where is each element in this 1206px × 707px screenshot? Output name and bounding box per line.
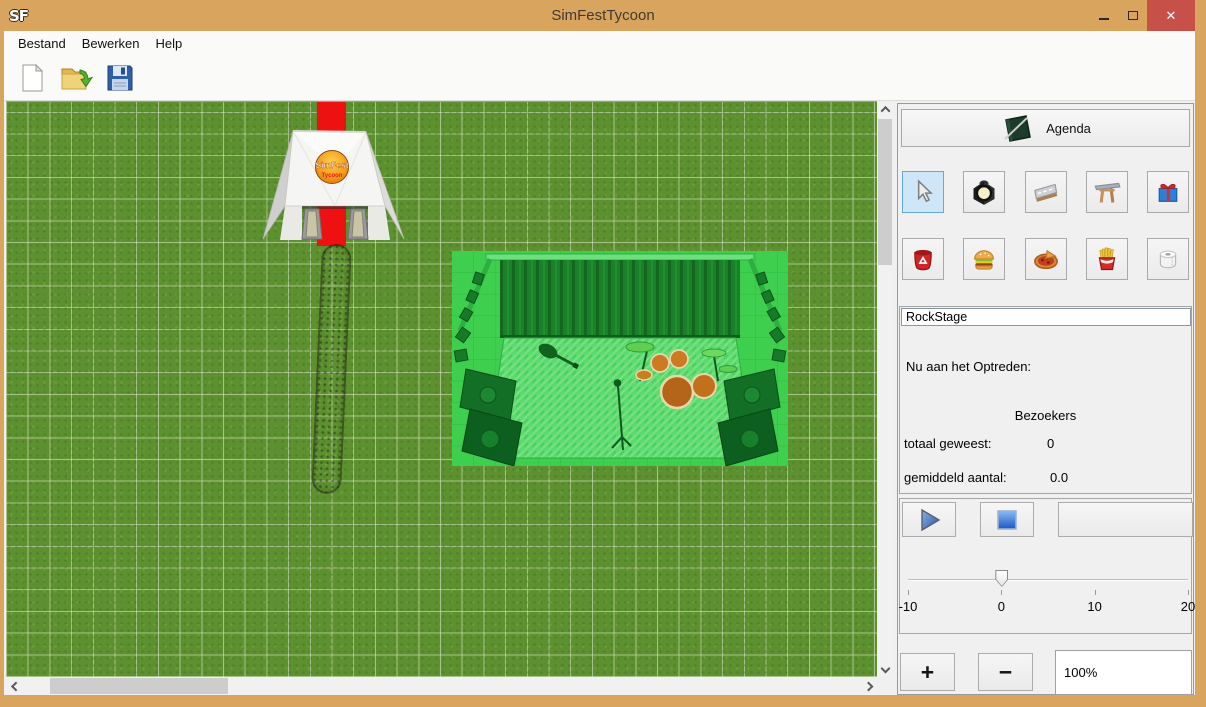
menu-bewerken[interactable]: Bewerken — [74, 34, 148, 53]
vertical-scrollbar[interactable] — [877, 101, 893, 677]
menu-help[interactable]: Help — [148, 34, 191, 53]
window-border-right — [1195, 31, 1206, 707]
select-tool-button[interactable] — [902, 171, 944, 213]
vertical-scroll-thumb[interactable] — [878, 119, 892, 265]
slider-label-min: -10 — [899, 599, 918, 614]
zoom-in-button[interactable]: + — [900, 653, 955, 691]
agenda-book-icon — [1000, 113, 1034, 143]
horizontal-scrollbar[interactable] — [6, 677, 877, 695]
road-tool-button[interactable] — [1025, 171, 1067, 213]
stage-name-input[interactable] — [901, 308, 1191, 326]
slider-track[interactable] — [908, 579, 1188, 580]
playback-section: -10 0 10 20 — [899, 498, 1192, 634]
chevron-down-icon — [880, 664, 890, 674]
trash-can-icon — [909, 245, 937, 273]
title-bar[interactable]: SF SimFestTycoon ✕ — [0, 0, 1206, 31]
zoom-out-button[interactable]: − — [978, 653, 1033, 691]
plus-icon: + — [921, 661, 934, 684]
now-performing-label: Nu aan het Optreden: — [906, 359, 1031, 374]
total-visitors-label: totaal geweest: — [904, 436, 991, 451]
tent-right-ramp — [348, 209, 368, 239]
visitors-header: Bezoekers — [900, 408, 1191, 423]
gift-tool-button[interactable] — [1147, 171, 1189, 213]
maximize-button[interactable] — [1118, 0, 1147, 31]
entrance-gate-tool-button[interactable] — [1086, 171, 1128, 213]
chevron-left-icon — [11, 681, 21, 691]
play-button[interactable] — [902, 502, 956, 537]
close-button[interactable]: ✕ — [1147, 0, 1195, 31]
road-piece-icon — [1032, 178, 1060, 206]
scroll-left-arrow[interactable] — [6, 677, 23, 695]
fries-stand-tool-button[interactable] — [1086, 238, 1128, 280]
minimize-icon — [1099, 18, 1109, 20]
svg-text:SimFest: SimFest — [315, 160, 348, 170]
stop-button[interactable] — [980, 502, 1034, 537]
agenda-label: Agenda — [1046, 121, 1091, 136]
spotlight-tool-button[interactable] — [963, 171, 1005, 213]
open-file-button[interactable] — [57, 59, 95, 97]
speed-slider[interactable]: -10 0 10 20 — [908, 563, 1188, 629]
maximize-icon — [1128, 11, 1138, 20]
tool-row-2 — [898, 238, 1193, 280]
save-file-button[interactable] — [101, 59, 139, 97]
window-border-left — [0, 31, 4, 707]
scroll-down-arrow[interactable] — [877, 660, 893, 677]
stage-curtain — [500, 260, 740, 338]
svg-text:Tycoon: Tycoon — [322, 173, 343, 179]
open-folder-icon — [59, 62, 93, 94]
gate-icon — [1093, 178, 1121, 206]
minimize-button[interactable] — [1089, 0, 1118, 31]
spotlight-icon — [970, 178, 998, 206]
menu-bestand[interactable]: Bestand — [10, 34, 74, 53]
window-border-bottom — [0, 695, 1206, 707]
toolbar — [4, 55, 1195, 101]
scroll-up-arrow[interactable] — [877, 101, 893, 118]
total-visitors-value: 0 — [1047, 436, 1054, 451]
simfest-logo: SimFest Tycoon — [315, 151, 348, 184]
gift-icon — [1154, 178, 1182, 206]
burger-stand-tool-button[interactable] — [963, 238, 1005, 280]
minus-icon: − — [999, 661, 1012, 684]
trash-can-tool-button[interactable] — [902, 238, 944, 280]
side-panel: Agenda — [897, 103, 1194, 695]
window-controls: ✕ — [1089, 0, 1195, 31]
tent-left-ramp — [302, 209, 322, 239]
zoom-level-input[interactable] — [1055, 650, 1192, 695]
horizontal-scroll-thumb[interactable] — [50, 678, 228, 694]
pizza-icon — [1032, 245, 1060, 273]
app-window: SF SimFestTycoon ✕ Bestand Bewerken Help — [0, 0, 1206, 707]
menu-bar: Bestand Bewerken Help — [4, 31, 1195, 55]
grass-grid[interactable]: SimFest Tycoon — [6, 101, 877, 677]
rock-stage[interactable] — [452, 251, 788, 466]
play-icon — [916, 507, 942, 533]
entrance-tent[interactable]: SimFest Tycoon — [262, 127, 407, 245]
slider-thumb[interactable] — [995, 570, 1008, 587]
fries-icon — [1093, 245, 1121, 273]
stage-info-section: Nu aan het Optreden: Bezoekers totaal ge… — [899, 306, 1192, 494]
toilet-paper-icon — [1154, 245, 1182, 273]
scroll-right-arrow[interactable] — [860, 677, 877, 695]
scrollbar-corner — [877, 677, 893, 695]
save-icon — [104, 62, 136, 94]
festival-map-canvas[interactable]: SimFest Tycoon — [6, 101, 893, 695]
average-visitors-label: gemiddeld aantal: — [904, 470, 1007, 485]
chevron-up-icon — [880, 106, 890, 116]
slider-label-max: 20 — [1181, 599, 1195, 614]
extra-playback-button[interactable] — [1058, 502, 1193, 537]
agenda-button[interactable]: Agenda — [901, 109, 1190, 147]
new-file-button[interactable] — [13, 59, 51, 97]
hamburger-icon — [970, 245, 998, 273]
pizza-stand-tool-button[interactable] — [1025, 238, 1067, 280]
window-title: SimFestTycoon — [0, 7, 1206, 24]
stop-icon — [994, 507, 1020, 533]
cursor-icon — [910, 179, 936, 205]
toilet-tool-button[interactable] — [1147, 238, 1189, 280]
slider-label-10: 10 — [1087, 599, 1101, 614]
chevron-right-icon — [864, 681, 874, 691]
close-icon: ✕ — [1166, 8, 1177, 24]
dirt-path[interactable] — [311, 243, 352, 494]
average-visitors-value: 0.0 — [1050, 470, 1068, 485]
new-file-icon — [16, 62, 48, 94]
tool-row-1 — [898, 171, 1193, 213]
slider-label-0: 0 — [998, 599, 1005, 614]
